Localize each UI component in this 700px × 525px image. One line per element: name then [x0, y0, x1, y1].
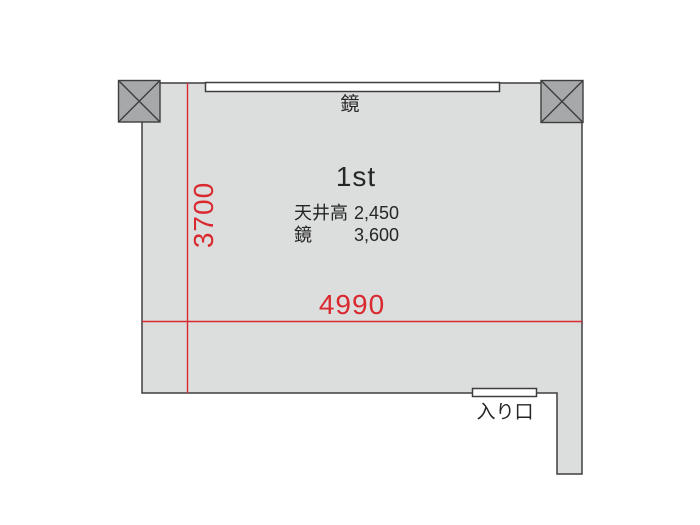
spec-label-ceiling: 天井高 — [294, 202, 354, 224]
pillar-top-right — [541, 81, 583, 123]
spec-row-ceiling: 天井高 2,450 — [294, 202, 399, 224]
dimension-depth-value: 3700 — [190, 182, 218, 248]
entrance-door-bar — [473, 389, 537, 397]
dimension-width-value: 4990 — [319, 291, 385, 319]
mirror-bar — [206, 83, 500, 92]
spec-value-ceiling: 2,450 — [354, 202, 399, 224]
pillar-top-left — [119, 81, 161, 123]
spec-label-mirror: 鏡 — [294, 224, 354, 246]
entrance-label: 入り口 — [476, 403, 533, 422]
spec-row-mirror: 鏡 3,600 — [294, 224, 399, 246]
floorplan-canvas: 鏡 1st 天井高 2,450 鏡 3,600 3700 4990 入り口 — [0, 0, 700, 525]
room-title: 1st — [336, 163, 376, 191]
mirror-label: 鏡 — [340, 95, 359, 114]
floorplan-drawing — [0, 0, 700, 525]
spec-value-mirror: 3,600 — [354, 224, 399, 246]
room-spec-table: 天井高 2,450 鏡 3,600 — [294, 202, 399, 246]
